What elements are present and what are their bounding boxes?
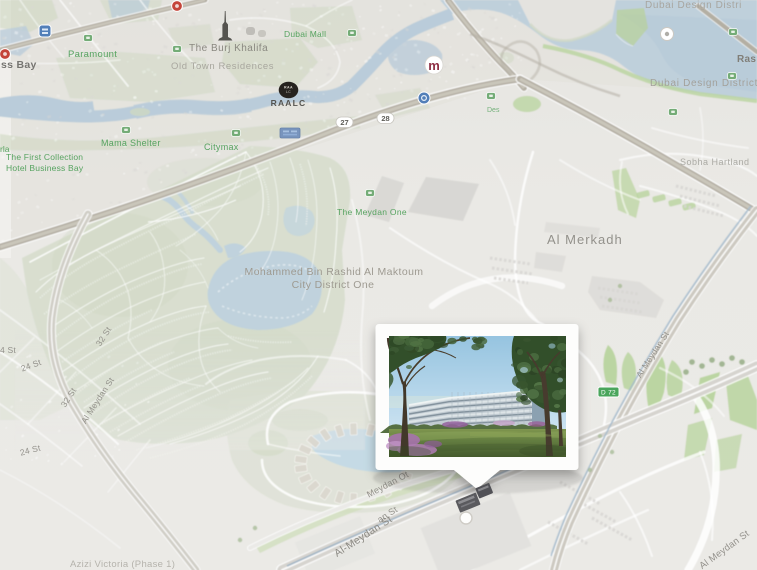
svg-text:Azizi Victoria (Phase 1): Azizi Victoria (Phase 1) — [70, 559, 175, 570]
svg-text:D 72: D 72 — [601, 390, 616, 397]
svg-text:Hotel Business Bay: Hotel Business Bay — [6, 163, 84, 173]
svg-text:RAA: RAA — [284, 86, 293, 90]
svg-text:Dubai Mall: Dubai Mall — [284, 29, 326, 39]
svg-text:Mama Shelter: Mama Shelter — [101, 138, 161, 148]
svg-text:The Meydan One: The Meydan One — [337, 207, 407, 217]
svg-text:Paramount: Paramount — [68, 49, 117, 60]
svg-text:4 St: 4 St — [0, 345, 16, 355]
svg-text:Citymax: Citymax — [204, 142, 239, 152]
svg-text:Old Town Residences: Old Town Residences — [171, 61, 274, 72]
svg-text:Dubai Design District: Dubai Design District — [650, 78, 757, 89]
svg-text:Al Merkadh: Al Merkadh — [547, 232, 623, 247]
svg-text:ss Bay: ss Bay — [1, 59, 37, 71]
svg-text:The First Collection: The First Collection — [6, 152, 83, 162]
svg-text:Des: Des — [487, 107, 500, 114]
svg-text:City District One: City District One — [292, 279, 375, 291]
svg-text:RAALC: RAALC — [271, 98, 307, 108]
svg-text:m: m — [428, 58, 440, 73]
svg-text:The Burj Khalifa: The Burj Khalifa — [189, 43, 268, 54]
svg-text:LC: LC — [286, 90, 291, 94]
svg-text:27: 27 — [340, 118, 348, 127]
svg-text:Dubai Design Distri: Dubai Design Distri — [645, 0, 742, 11]
svg-text:Mohammed Bin Rashid Al Maktoum: Mohammed Bin Rashid Al Maktoum — [245, 266, 424, 278]
svg-text:Ras: Ras — [737, 54, 756, 65]
svg-text:Sobha Hartland: Sobha Hartland — [680, 157, 750, 167]
svg-text:28: 28 — [381, 114, 389, 123]
